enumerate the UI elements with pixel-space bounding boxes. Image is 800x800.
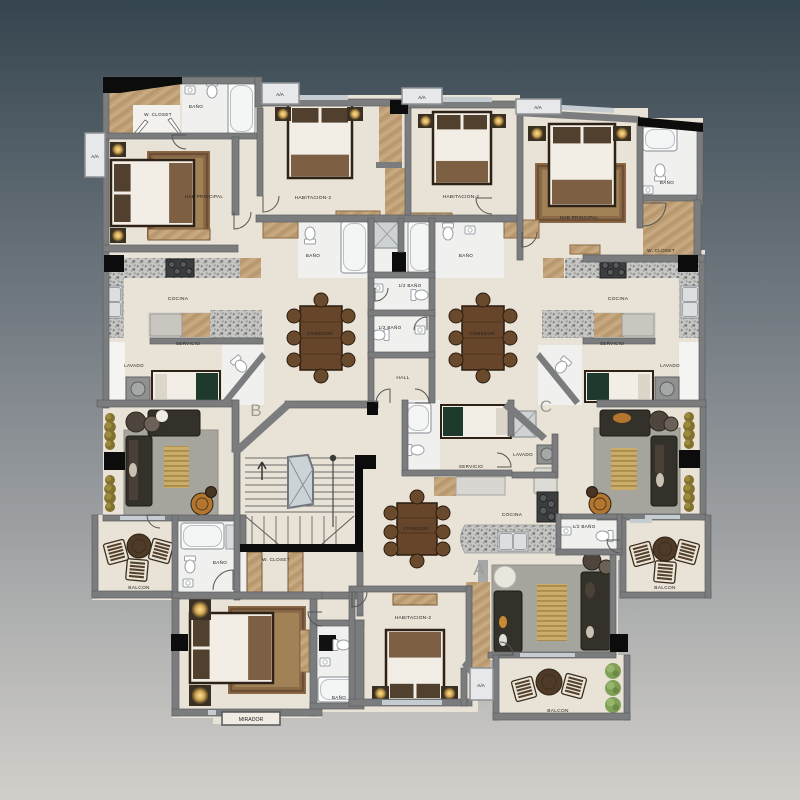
svg-text:B: B [250, 401, 262, 420]
svg-text:1/2 BAÑO: 1/2 BAÑO [572, 523, 595, 529]
svg-text:HABITACION-2: HABITACION-2 [443, 194, 480, 200]
svg-text:BAÑO: BAÑO [306, 252, 320, 258]
svg-text:COCINA: COCINA [502, 512, 523, 518]
svg-text:COCINA: COCINA [608, 296, 629, 302]
svg-text:A/A: A/A [276, 92, 285, 98]
svg-text:SERVICIO: SERVICIO [600, 341, 624, 346]
svg-text:A/A: A/A [477, 683, 486, 689]
svg-text:COMEDOR: COMEDOR [469, 331, 495, 336]
svg-text:1/2 BAÑO: 1/2 BAÑO [398, 282, 421, 288]
svg-text:HAB PRINCIPAL: HAB PRINCIPAL [185, 194, 224, 199]
svg-text:W. CLOSET: W. CLOSET [647, 248, 675, 253]
svg-text:BAÑO: BAÑO [189, 103, 203, 109]
svg-text:COMEDOR: COMEDOR [307, 331, 333, 336]
svg-text:COMEDOR: COMEDOR [403, 526, 429, 531]
svg-text:BALCON: BALCON [128, 585, 150, 591]
svg-text:HABITACION-2: HABITACION-2 [395, 615, 432, 621]
svg-text:BAÑO: BAÑO [459, 252, 473, 258]
svg-text:MIRADOR: MIRADOR [239, 717, 264, 723]
svg-text:BAÑO: BAÑO [213, 559, 227, 565]
svg-text:LAVADO: LAVADO [513, 452, 533, 457]
svg-text:W. CLOSET: W. CLOSET [262, 557, 290, 562]
svg-text:W. CLOSET: W. CLOSET [144, 112, 172, 117]
svg-text:A: A [473, 560, 485, 579]
svg-text:A/A: A/A [418, 95, 427, 101]
svg-text:HAB PRINCIPAL: HAB PRINCIPAL [560, 215, 599, 220]
svg-text:COCINA: COCINA [168, 296, 189, 302]
svg-text:BAÑO: BAÑO [660, 179, 674, 185]
svg-text:SERVICIO: SERVICIO [459, 464, 483, 469]
svg-text:A/A: A/A [91, 154, 100, 160]
svg-text:SERVICIO: SERVICIO [176, 341, 200, 346]
svg-text:C: C [540, 397, 552, 416]
svg-text:LAVADO: LAVADO [124, 363, 144, 368]
svg-text:LAVADO: LAVADO [660, 363, 680, 368]
svg-text:HABITACION-2: HABITACION-2 [295, 195, 332, 201]
svg-text:BALCON: BALCON [547, 708, 569, 714]
svg-text:1/2 BAÑO: 1/2 BAÑO [378, 324, 401, 330]
svg-text:BAÑO: BAÑO [332, 694, 346, 700]
svg-text:HALL: HALL [396, 375, 409, 381]
svg-text:BALCON: BALCON [654, 585, 676, 591]
svg-text:A/A: A/A [534, 105, 543, 111]
